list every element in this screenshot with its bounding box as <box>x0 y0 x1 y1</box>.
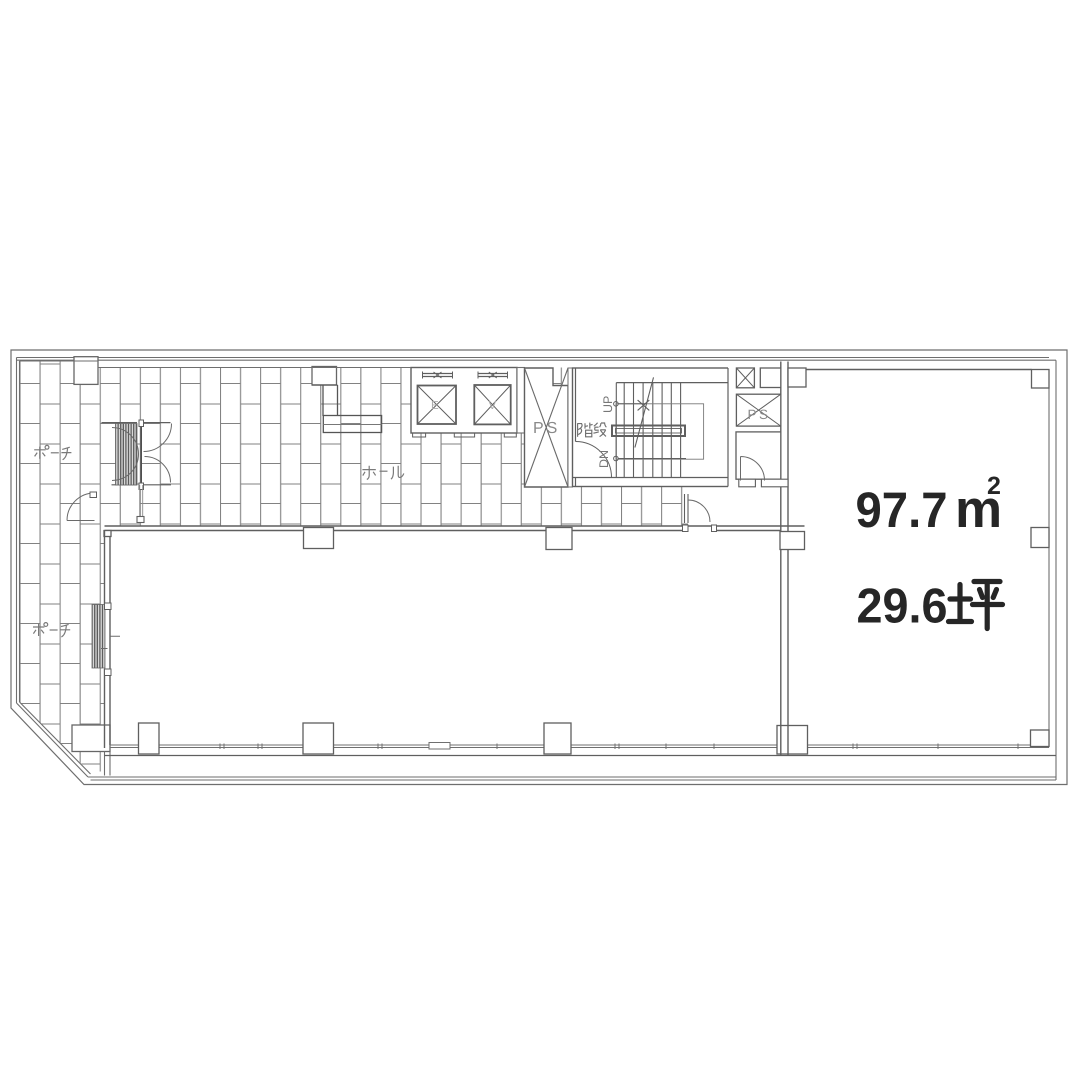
svg-text:UP: UP <box>601 396 615 413</box>
svg-text:29.6: 29.6 <box>857 580 948 634</box>
svg-text:E: E <box>431 400 439 412</box>
svg-text:DN: DN <box>597 450 611 468</box>
svg-text:PS: PS <box>533 420 560 437</box>
svg-text:2: 2 <box>987 472 1001 500</box>
svg-text:97.7: 97.7 <box>856 482 948 538</box>
svg-text:PS: PS <box>748 407 771 422</box>
svg-text:V: V <box>489 400 497 412</box>
